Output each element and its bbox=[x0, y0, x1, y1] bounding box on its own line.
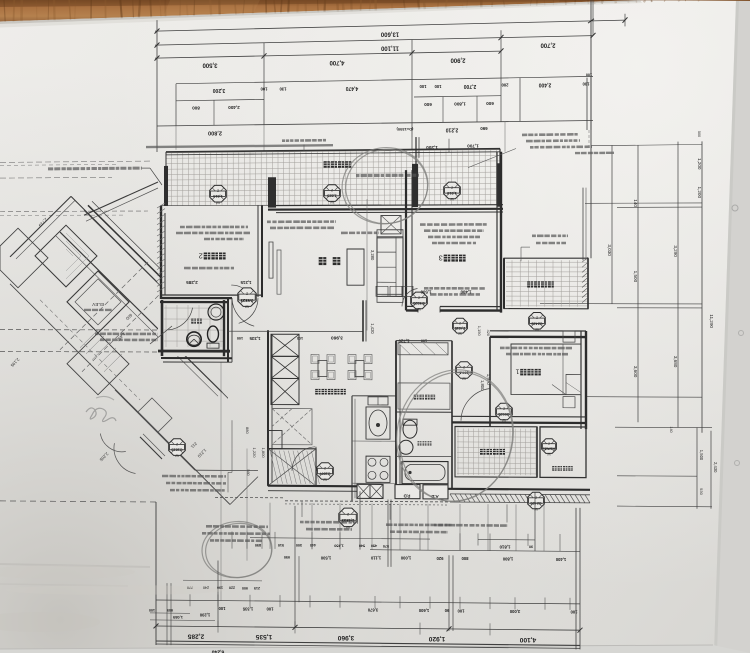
svg-text:1,700: 1,700 bbox=[467, 143, 479, 148]
svg-text:100: 100 bbox=[434, 84, 442, 89]
svg-text:100: 100 bbox=[237, 336, 243, 340]
svg-text:1,420: 1,420 bbox=[370, 323, 375, 334]
svg-text:1,813: 1,813 bbox=[213, 194, 223, 198]
svg-text:2,210: 2,210 bbox=[446, 127, 459, 133]
svg-text:950: 950 bbox=[284, 555, 290, 559]
svg-text:1,215: 1,215 bbox=[240, 280, 252, 285]
svg-text:0.5823: 0.5823 bbox=[240, 298, 253, 303]
svg-text:(D=1350): (D=1350) bbox=[396, 127, 413, 132]
svg-text:1,150: 1,150 bbox=[477, 326, 482, 337]
svg-text:0.5823: 0.5823 bbox=[413, 301, 425, 305]
svg-text:2,700: 2,700 bbox=[464, 83, 477, 89]
svg-text:2,285: 2,285 bbox=[187, 632, 204, 639]
svg-text:1,000: 1,000 bbox=[400, 556, 411, 561]
svg-text:2: 2 bbox=[331, 188, 333, 192]
svg-text:2,900: 2,900 bbox=[450, 57, 466, 63]
svg-text:C1807: C1807 bbox=[319, 472, 330, 476]
svg-text:1,600: 1,600 bbox=[418, 608, 429, 613]
svg-text:3: 3 bbox=[439, 253, 443, 262]
svg-text:1,335: 1,335 bbox=[249, 336, 261, 341]
svg-text:2: 2 bbox=[199, 251, 203, 260]
svg-text:1,110: 1,110 bbox=[370, 555, 381, 560]
svg-text:200: 200 bbox=[501, 83, 509, 88]
svg-text:850: 850 bbox=[255, 543, 261, 547]
svg-text:2: 2 bbox=[324, 466, 326, 470]
svg-text:2: 2 bbox=[548, 442, 550, 446]
svg-text:P.D: P.D bbox=[404, 494, 411, 499]
svg-text:1,220: 1,220 bbox=[252, 447, 257, 458]
svg-text:3,670: 3,670 bbox=[367, 608, 378, 613]
svg-text:4,700: 4,700 bbox=[329, 59, 345, 65]
svg-text:1,800: 1,800 bbox=[261, 448, 266, 459]
svg-text:2,400: 2,400 bbox=[539, 82, 552, 88]
svg-text:140: 140 bbox=[633, 199, 638, 207]
svg-text:1,400: 1,400 bbox=[555, 557, 566, 562]
svg-text:2: 2 bbox=[418, 295, 420, 299]
svg-text:W: W bbox=[323, 478, 327, 482]
svg-text:440: 440 bbox=[310, 543, 316, 547]
svg-text:800: 800 bbox=[192, 106, 200, 111]
svg-text:3,960: 3,960 bbox=[337, 634, 354, 641]
svg-text:1,200: 1,200 bbox=[199, 612, 210, 617]
svg-text:3,290: 3,290 bbox=[673, 245, 678, 257]
svg-text:1: 1 bbox=[515, 368, 519, 375]
svg-text:C2423: C2423 bbox=[530, 501, 541, 505]
svg-text:100: 100 bbox=[260, 87, 268, 92]
svg-text:560: 560 bbox=[246, 469, 250, 475]
svg-text:1,500: 1,500 bbox=[420, 289, 432, 294]
svg-text:W: W bbox=[450, 197, 454, 201]
svg-text:W: W bbox=[245, 305, 249, 310]
svg-text:880: 880 bbox=[245, 427, 250, 434]
svg-text:3,680: 3,680 bbox=[673, 356, 678, 368]
svg-text:W: W bbox=[330, 200, 334, 204]
svg-text:ELEV: ELEV bbox=[91, 302, 104, 307]
svg-text:905: 905 bbox=[167, 608, 173, 612]
svg-text:4,470: 4,470 bbox=[346, 85, 359, 91]
svg-text:600: 600 bbox=[486, 101, 494, 106]
svg-text:W: W bbox=[175, 454, 179, 458]
svg-text:3,030: 3,030 bbox=[607, 244, 612, 256]
svg-text:0.SW21: 0.SW21 bbox=[543, 446, 555, 450]
svg-text:1,500: 1,500 bbox=[320, 555, 331, 560]
svg-text:2,700: 2,700 bbox=[540, 41, 556, 47]
svg-text:1,920: 1,920 bbox=[428, 635, 445, 642]
svg-text:220: 220 bbox=[229, 586, 235, 590]
svg-text:100: 100 bbox=[582, 81, 590, 86]
svg-text:W: W bbox=[458, 332, 461, 336]
svg-text:1,813: 1,813 bbox=[447, 191, 457, 195]
svg-text:2: 2 bbox=[459, 321, 461, 325]
svg-text:3,000: 3,000 bbox=[509, 609, 520, 614]
svg-text:6,240: 6,240 bbox=[212, 649, 225, 653]
svg-text:100: 100 bbox=[457, 608, 465, 613]
svg-text:900: 900 bbox=[242, 586, 248, 590]
svg-text:1,535: 1,535 bbox=[255, 633, 272, 640]
svg-text:100: 100 bbox=[149, 608, 155, 612]
svg-text:215: 215 bbox=[254, 586, 260, 590]
svg-text:W: W bbox=[216, 200, 220, 204]
svg-text:1,200: 1,200 bbox=[697, 158, 702, 170]
svg-text:2: 2 bbox=[217, 189, 219, 193]
svg-text:510: 510 bbox=[278, 543, 284, 547]
svg-text:930: 930 bbox=[699, 488, 704, 495]
svg-text:130: 130 bbox=[279, 86, 287, 91]
svg-text:2: 2 bbox=[451, 185, 453, 189]
svg-text:2: 2 bbox=[176, 442, 178, 446]
svg-text:2,285: 2,285 bbox=[186, 280, 198, 285]
svg-text:1,823: 1,823 bbox=[327, 194, 337, 198]
svg-text:4,100: 4,100 bbox=[519, 636, 536, 643]
svg-text:C1813: C1813 bbox=[171, 448, 182, 452]
svg-text:1,335: 1,335 bbox=[242, 606, 253, 611]
svg-text:3,960: 3,960 bbox=[331, 334, 343, 340]
svg-text:W: W bbox=[417, 307, 421, 311]
svg-text:2,430: 2,430 bbox=[713, 462, 718, 473]
svg-text:1,400: 1,400 bbox=[460, 289, 472, 294]
svg-text:1,085: 1,085 bbox=[172, 615, 183, 620]
svg-text:100: 100 bbox=[297, 336, 303, 340]
svg-text:3,600: 3,600 bbox=[633, 366, 638, 378]
svg-text:1,500: 1,500 bbox=[633, 271, 638, 283]
svg-text:500: 500 bbox=[697, 131, 701, 137]
svg-text:W: W bbox=[547, 452, 550, 456]
svg-text:1,450: 1,450 bbox=[334, 543, 344, 547]
svg-text:1,200: 1,200 bbox=[697, 187, 702, 199]
svg-text:11,100: 11,100 bbox=[380, 45, 399, 51]
svg-text:2,400: 2,400 bbox=[228, 105, 240, 110]
svg-text:W: W bbox=[462, 377, 466, 381]
svg-text:2: 2 bbox=[536, 316, 538, 320]
svg-text:1,500: 1,500 bbox=[699, 450, 704, 461]
svg-text:690: 690 bbox=[480, 126, 488, 131]
svg-text:570: 570 bbox=[383, 544, 389, 548]
svg-text:140: 140 bbox=[669, 426, 673, 432]
svg-text:1,4813: 1,4813 bbox=[455, 326, 465, 330]
svg-text:600: 600 bbox=[424, 102, 432, 107]
svg-text:800: 800 bbox=[461, 556, 469, 561]
svg-text:2: 2 bbox=[463, 365, 465, 369]
svg-text:100: 100 bbox=[419, 84, 427, 89]
svg-text:100: 100 bbox=[266, 607, 274, 612]
svg-text:C2423: C2423 bbox=[531, 321, 542, 325]
svg-text:420: 420 bbox=[486, 330, 490, 336]
svg-text:W: W bbox=[534, 507, 538, 511]
svg-text:540: 540 bbox=[359, 544, 365, 548]
svg-text:3,500: 3,500 bbox=[202, 62, 218, 68]
svg-text:1,800: 1,800 bbox=[502, 556, 513, 561]
svg-text:2,800: 2,800 bbox=[208, 129, 222, 135]
svg-text:100: 100 bbox=[586, 72, 592, 76]
svg-text:C0923: C0923 bbox=[498, 412, 509, 416]
svg-text:920: 920 bbox=[436, 556, 444, 561]
svg-text:90: 90 bbox=[529, 544, 533, 548]
svg-text:W: W bbox=[502, 418, 506, 422]
svg-text:11,290: 11,290 bbox=[709, 314, 714, 328]
svg-text:1,810: 1,810 bbox=[499, 545, 511, 550]
svg-text:1,800: 1,800 bbox=[454, 102, 466, 107]
svg-text:100: 100 bbox=[570, 609, 578, 614]
svg-text:100: 100 bbox=[218, 606, 226, 611]
svg-text:300: 300 bbox=[296, 543, 302, 547]
svg-text:90: 90 bbox=[444, 608, 449, 613]
svg-text:3,200: 3,200 bbox=[213, 87, 226, 93]
svg-text:2: 2 bbox=[503, 407, 505, 411]
svg-text:3,280: 3,280 bbox=[370, 250, 375, 261]
svg-text:13,600: 13,600 bbox=[380, 30, 399, 36]
